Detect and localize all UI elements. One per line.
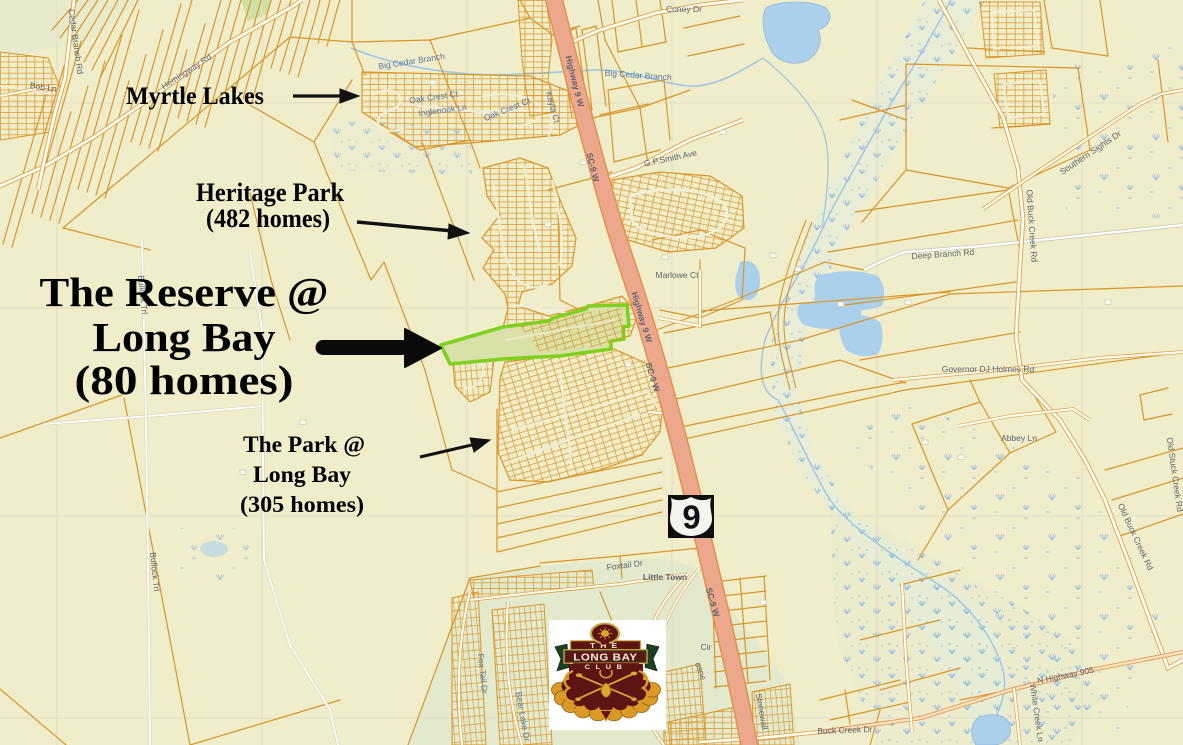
svg-text:The Reserve @: The Reserve @ xyxy=(40,269,329,315)
svg-text:Long Bay: Long Bay xyxy=(93,314,277,360)
svg-text:(305 homes): (305 homes) xyxy=(240,492,364,517)
svg-text:Cir: Cir xyxy=(701,642,712,652)
svg-text:Long Bay: Long Bay xyxy=(253,462,352,487)
svg-text:Myrtle Lakes: Myrtle Lakes xyxy=(126,83,264,110)
svg-text:Abbey Ln: Abbey Ln xyxy=(1001,433,1037,443)
svg-text:9: 9 xyxy=(682,499,700,536)
svg-text:Heritage Park: Heritage Park xyxy=(196,178,345,207)
svg-text:(482 homes): (482 homes) xyxy=(206,204,330,233)
svg-text:(80 homes): (80 homes) xyxy=(75,357,294,403)
svg-text:LONG BAY: LONG BAY xyxy=(573,652,637,663)
svg-text:The Park @: The Park @ xyxy=(243,432,365,458)
svg-text:Marlowe Ct: Marlowe Ct xyxy=(656,270,700,280)
svg-text:Little Town: Little Town xyxy=(643,572,687,582)
svg-text:Buck Creek Dr: Buck Creek Dr xyxy=(817,724,873,736)
svg-text:Coney Dr: Coney Dr xyxy=(666,4,702,14)
svg-text:CLUB: CLUB xyxy=(585,665,628,671)
svg-text:Governor DJ Holmes Rd: Governor DJ Holmes Rd xyxy=(942,364,1035,374)
